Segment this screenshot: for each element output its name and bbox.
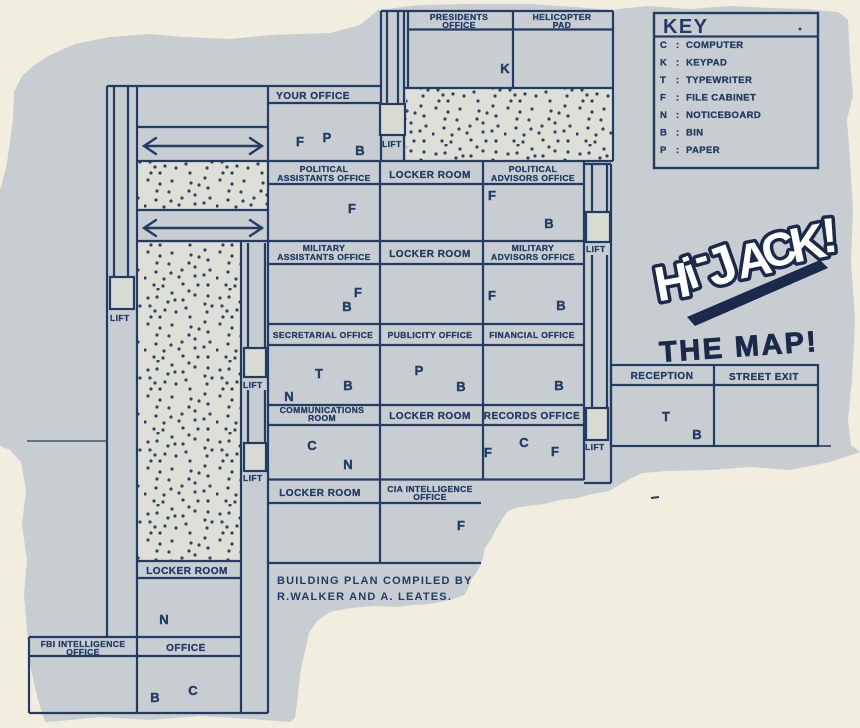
svg-text::: :	[676, 40, 680, 51]
svg-text:T: T	[660, 75, 666, 86]
svg-text:FILE CABINET: FILE CABINET	[686, 93, 756, 104]
svg-text:LIFT: LIFT	[243, 473, 263, 483]
svg-text:KEY: KEY	[663, 16, 708, 38]
svg-text::: :	[676, 75, 680, 86]
svg-text:NOTICEBOARD: NOTICEBOARD	[686, 110, 761, 121]
svg-text:N: N	[343, 457, 352, 472]
svg-text:ASSISTANTS OFFICE: ASSISTANTS OFFICE	[277, 252, 371, 262]
svg-text:C: C	[307, 438, 317, 453]
svg-text:ADVISORS OFFICE: ADVISORS OFFICE	[491, 173, 575, 183]
svg-text:N: N	[660, 110, 667, 121]
svg-text:LOCKER ROOM: LOCKER ROOM	[389, 249, 471, 260]
svg-text:LIFT: LIFT	[243, 380, 263, 390]
svg-text:BUILDING PLAN COMPILED BY: BUILDING PLAN COMPILED BY	[277, 575, 473, 587]
svg-text:FINANCIAL OFFICE: FINANCIAL OFFICE	[489, 330, 575, 340]
svg-text:COMPUTER: COMPUTER	[686, 40, 744, 51]
svg-text:P: P	[323, 130, 332, 145]
svg-text:B: B	[456, 379, 465, 394]
svg-text:F: F	[488, 288, 496, 303]
svg-text:F: F	[457, 518, 465, 533]
svg-text::: :	[676, 110, 680, 121]
svg-text:LOCKER ROOM: LOCKER ROOM	[146, 566, 228, 577]
svg-text:B: B	[343, 378, 352, 393]
svg-text:B: B	[556, 298, 565, 313]
svg-text:B: B	[355, 143, 364, 158]
svg-text:PUBLICITY OFFICE: PUBLICITY OFFICE	[388, 330, 473, 340]
svg-text:STREET EXIT: STREET EXIT	[729, 372, 799, 383]
svg-text:LIFT: LIFT	[110, 313, 130, 323]
svg-text:SECRETARIAL OFFICE: SECRETARIAL OFFICE	[273, 330, 373, 340]
svg-text:C: C	[188, 683, 198, 698]
svg-text:OFFICE: OFFICE	[442, 20, 476, 30]
svg-text:RECORDS OFFICE: RECORDS OFFICE	[484, 411, 580, 422]
svg-text::: :	[676, 93, 680, 104]
svg-text:F: F	[551, 444, 559, 459]
svg-text:OFFICE: OFFICE	[66, 647, 100, 657]
svg-text:C: C	[660, 40, 667, 51]
svg-text:K: K	[660, 58, 667, 69]
svg-text:ASSISTANTS OFFICE: ASSISTANTS OFFICE	[277, 173, 371, 183]
svg-text:T: T	[662, 409, 670, 424]
svg-text:F: F	[484, 445, 492, 460]
svg-text::: :	[676, 58, 680, 69]
svg-text:B: B	[692, 427, 701, 442]
svg-text:F: F	[348, 201, 356, 216]
svg-text:B: B	[342, 299, 351, 314]
svg-text:R.WALKER AND A. LEATES.: R.WALKER AND A. LEATES.	[277, 591, 452, 603]
svg-text:LOCKER ROOM: LOCKER ROOM	[389, 170, 471, 181]
svg-text:F: F	[488, 188, 496, 203]
svg-text:ADVISORS OFFICE: ADVISORS OFFICE	[491, 252, 575, 262]
svg-text::: :	[676, 128, 680, 139]
svg-text:F: F	[296, 134, 304, 149]
svg-text:PAPER: PAPER	[686, 145, 720, 156]
svg-text:P: P	[660, 145, 667, 156]
svg-text:OFFICE: OFFICE	[166, 643, 206, 654]
svg-text:KEYPAD: KEYPAD	[686, 58, 727, 69]
svg-text:B: B	[150, 690, 159, 705]
svg-text:F: F	[354, 285, 362, 300]
svg-text:P: P	[415, 363, 424, 378]
svg-text:RECEPTION: RECEPTION	[631, 371, 694, 382]
svg-text:N: N	[284, 389, 293, 404]
svg-text:B: B	[544, 216, 553, 231]
svg-text:N: N	[159, 612, 168, 627]
svg-text:K: K	[500, 61, 510, 76]
svg-text:LIFT: LIFT	[382, 139, 402, 149]
svg-text:ROOM: ROOM	[308, 413, 336, 423]
svg-text:BIN: BIN	[686, 128, 704, 139]
svg-text:F: F	[660, 93, 666, 104]
svg-text:PAD: PAD	[553, 20, 572, 30]
svg-text:C: C	[519, 435, 529, 450]
svg-text:TYPEWRITER: TYPEWRITER	[686, 75, 752, 86]
svg-text:LOCKER ROOM: LOCKER ROOM	[389, 411, 471, 422]
svg-text::: :	[676, 145, 680, 156]
svg-text:LIFT: LIFT	[586, 244, 606, 254]
svg-text:OFFICE: OFFICE	[413, 492, 447, 502]
svg-text:LOCKER ROOM: LOCKER ROOM	[279, 488, 361, 499]
svg-text:B: B	[554, 378, 563, 393]
svg-text:LIFT: LIFT	[585, 442, 605, 452]
svg-text:T: T	[315, 366, 323, 381]
svg-text:YOUR OFFICE: YOUR OFFICE	[276, 91, 350, 102]
svg-text:B: B	[660, 128, 667, 139]
